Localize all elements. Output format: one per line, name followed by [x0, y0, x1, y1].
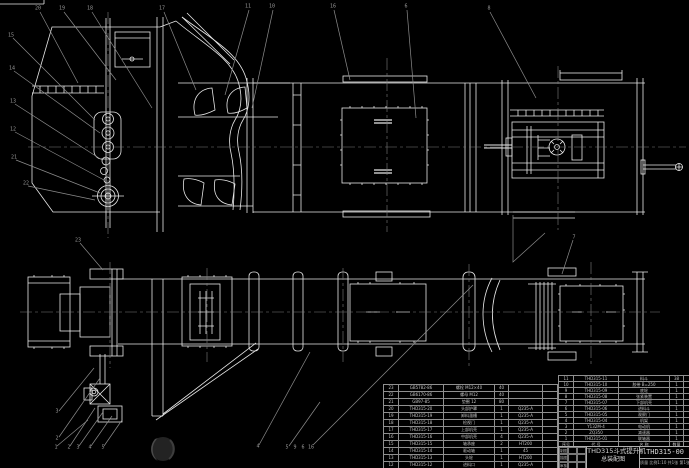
balloon-number: 4: [256, 445, 259, 450]
centerlines: [20, 12, 686, 368]
signature-cell: 制图: [559, 447, 568, 454]
bom-row: 13THD315-13头轮1HT200: [384, 455, 586, 462]
bom-row: 12THD315-12进料口1Q235-A: [384, 462, 586, 468]
balloon-number: 6: [404, 5, 407, 10]
bom-row: 20THD315-20头部护罩1Q235-A: [384, 406, 586, 413]
balloon-number: 1: [54, 446, 57, 451]
signature-cell: [577, 447, 586, 454]
drawing-number-cell: THD315-00 质量 比例1:10 共1张 第1张: [640, 447, 689, 468]
balloon-number: 16: [330, 5, 336, 10]
signature-cell: [568, 462, 577, 468]
balloon-number: 15: [8, 34, 14, 39]
signature-cell: 描图: [559, 454, 568, 461]
bom-table-right: 11THD315-11料斗38Q235-A10THD315-10胶带 B=250…: [558, 375, 689, 448]
cad-canvas: 2019181711101668151413122122237321234545…: [0, 0, 689, 468]
balloon-number: 16: [308, 446, 314, 451]
signature-cell: 审核: [559, 462, 568, 468]
bom-row: 15THD315-15轴承座2HT200: [384, 441, 586, 448]
bom-row: 22GB6170-86螺母 M1240: [384, 392, 586, 399]
balloon-number: 3: [55, 410, 58, 415]
bom-row: 23GB5782-86螺栓 M12×4040: [384, 385, 586, 392]
bom-row: 17THD315-17上部机壳1Q235-A: [384, 427, 586, 434]
crescent-logo: [151, 437, 175, 461]
balloon-number: 23: [75, 239, 81, 244]
balloon-number: 8: [487, 7, 490, 12]
bom-row: 18THD315-18检视门1Q235-A: [384, 420, 586, 427]
balloon-number: 22: [23, 182, 29, 187]
balloon-number: 3: [76, 446, 79, 451]
leader-lines: [13, 10, 573, 446]
title-block: 制图描图审核 THD315斗式提升机 总装配图 THD315-00 质量 比例1…: [558, 446, 689, 468]
balloon-number: 9: [293, 446, 296, 451]
signature-cell: [577, 462, 586, 468]
drawing-number: THD315-00: [640, 447, 689, 459]
balloon-number: 4: [88, 446, 91, 451]
drawing-title-line1: THD315斗式提升机: [587, 447, 639, 456]
balloon-number: 6: [301, 446, 304, 451]
drawing-title-line2: 总装配图: [587, 456, 639, 464]
bom-row: 16THD315-16中部机壳4Q235-A: [384, 434, 586, 441]
frame-corner: [0, 0, 44, 4]
balloon-number: 5: [101, 446, 104, 451]
balloon-number: 5: [285, 446, 288, 451]
balloon-number: 14: [9, 67, 15, 72]
drawing-info-row: 质量 比例1:10 共1张 第1张: [640, 459, 689, 466]
signature-cell: [568, 454, 577, 461]
balloon-number: 18: [87, 7, 93, 12]
balloon-number: 13: [10, 100, 16, 105]
balloon-number: 7: [572, 236, 575, 241]
bom-table-left: 23GB5782-86螺栓 M12×404022GB6170-86螺母 M124…: [383, 384, 586, 468]
balloon-number: 10: [269, 5, 275, 10]
bom-row: 14THD315-14驱动轴145: [384, 448, 586, 455]
signature-cell: [568, 447, 577, 454]
elevation-view: [32, 13, 683, 232]
bom-row: 21GB97-85垫圈 1280: [384, 399, 586, 406]
signature-grid: 制图描图审核: [559, 447, 587, 468]
balloon-number: 2: [67, 446, 70, 451]
balloon-number: 2: [55, 437, 58, 442]
balloon-number: 20: [35, 7, 41, 12]
signature-cell: [577, 454, 586, 461]
balloon-number: 12: [10, 128, 16, 133]
balloon-number: 17: [159, 7, 165, 12]
drawing-title: THD315斗式提升机 总装配图: [587, 447, 640, 468]
balloon-number: 19: [59, 7, 65, 12]
balloon-number: 11: [245, 5, 251, 10]
balloon-number: 21: [11, 156, 17, 161]
bom-row: 19THD315-19卸料溜槽1Q235-A: [384, 413, 586, 420]
